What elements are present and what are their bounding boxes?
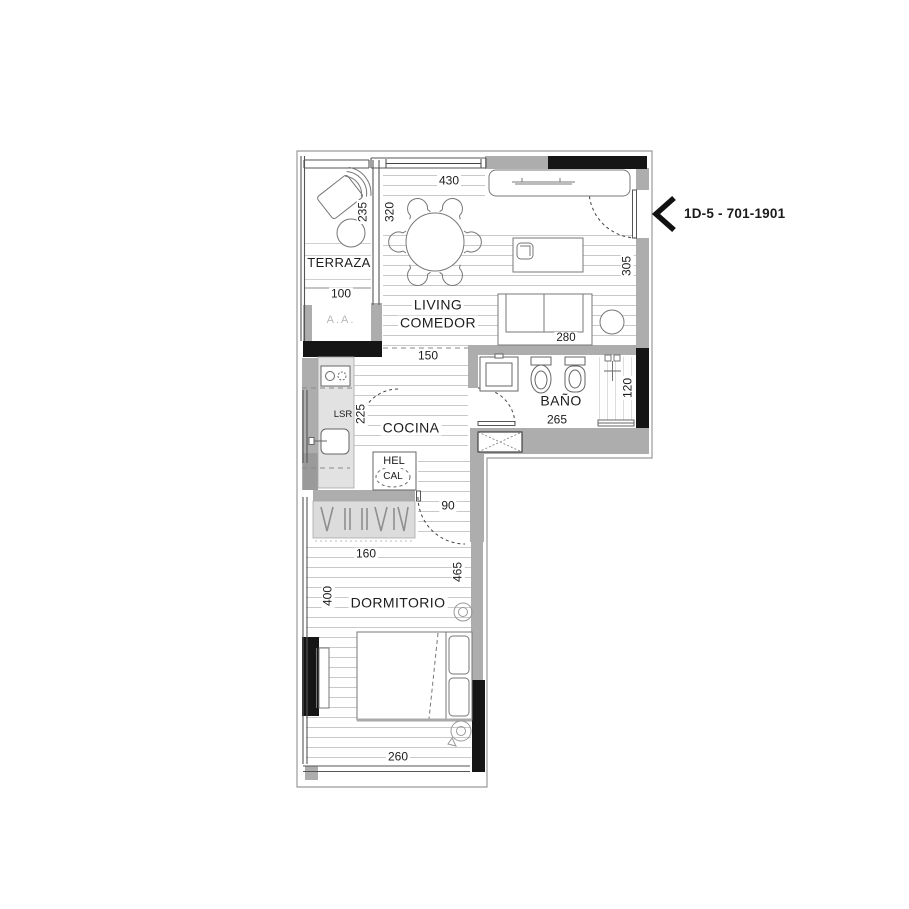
side-table [600, 310, 624, 334]
dining-table [389, 195, 482, 288]
fridge-label: HEL [381, 456, 406, 468]
terraza-area-label: 100 [329, 288, 353, 301]
vanity [480, 354, 518, 391]
ac-unit-label: A.A. [325, 315, 358, 327]
dim-400-label: 400 [322, 584, 335, 608]
dim-430-label: 430 [437, 175, 461, 188]
dim-305-label: 305 [621, 254, 634, 278]
dim-120-label: 120 [622, 376, 635, 400]
dim-line-430 [386, 159, 481, 168]
dorm-side-window [303, 497, 307, 764]
dim-260-label: 260 [386, 751, 410, 764]
bath-door [478, 388, 515, 426]
cooktop [321, 366, 350, 386]
heater-label: CAL [381, 472, 404, 483]
ceiling-light-2 [448, 721, 471, 746]
toilet [565, 357, 585, 392]
washer-label: LSR [332, 410, 354, 420]
dorm-bottom-window [303, 766, 470, 772]
dim-160-label: 160 [354, 548, 378, 561]
bed [357, 632, 472, 720]
entry-closet [489, 170, 630, 196]
terraza-sliding-door [373, 160, 379, 305]
dim-465-label: 465 [452, 560, 465, 584]
towel-bar [598, 420, 634, 426]
unit-entry-chevron-icon[interactable] [656, 198, 674, 230]
dim-280-label: 280 [554, 332, 577, 344]
bedroom-furniture [317, 603, 473, 746]
terraza-rail-window [301, 156, 305, 341]
entry-door [589, 190, 637, 238]
dim-150-label: 150 [416, 350, 440, 363]
bano-label: BAÑO [538, 394, 583, 409]
dim-265-label: 265 [545, 414, 569, 427]
dim-225-label: 225 [355, 402, 368, 426]
shower-mixer [604, 355, 621, 381]
terraza-window [304, 160, 369, 168]
dim-320-label: 320 [384, 200, 397, 224]
dormitorio-label: DORMITORIO [349, 596, 448, 611]
desk [513, 238, 583, 272]
dim-235-label: 235 [357, 200, 370, 224]
closet-fill [313, 501, 415, 538]
dim-90-label: 90 [439, 500, 456, 513]
sofa [498, 294, 592, 345]
floor-plan: TERRAZA 100 A.A. 430 320 235 305 280 150… [0, 0, 909, 909]
terraza-label: TERRAZA [305, 256, 372, 270]
living-label-line1: LIVING [412, 298, 464, 313]
living-label-line2: COMEDOR [398, 316, 478, 331]
bidet [531, 357, 551, 393]
ceiling-light-1 [454, 603, 472, 621]
cocina-label: COCINA [381, 421, 442, 436]
unit-id-label[interactable]: 1D-5 - 701-1901 [684, 206, 785, 221]
shaft [478, 432, 522, 452]
